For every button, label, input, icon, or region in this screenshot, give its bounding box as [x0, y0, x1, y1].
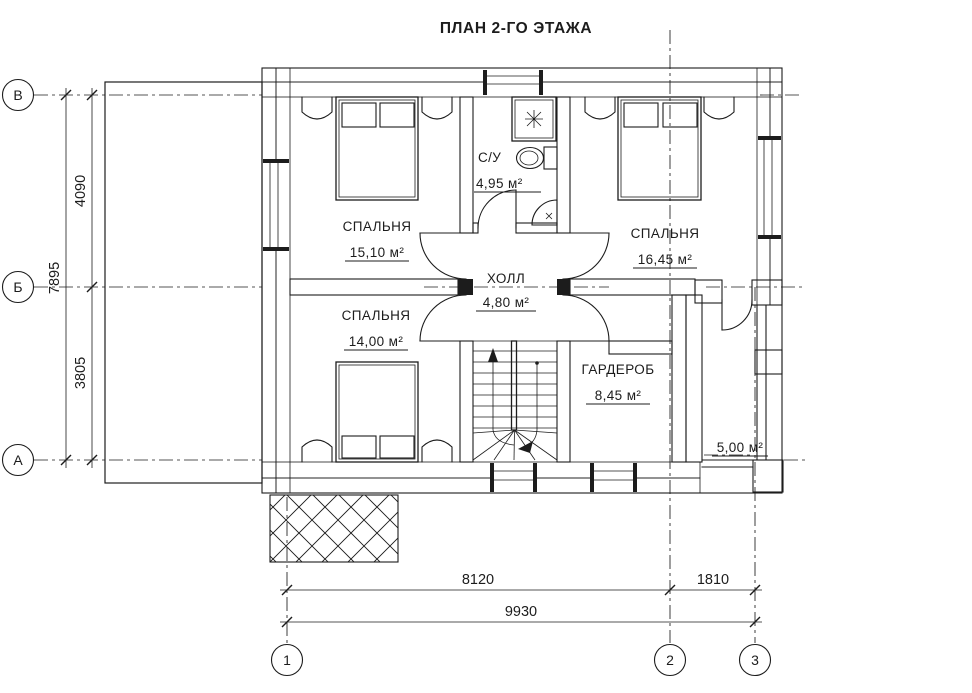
window-top: [483, 69, 543, 96]
axis-row-v-label: В: [13, 87, 22, 103]
dimension-left: 4090 3805 7895: [47, 88, 97, 468]
balcony: [702, 305, 783, 492]
grid-axis-bubbles: В Б А 1 2 3: [3, 80, 771, 676]
room-area-bathroom: 4,95 м²: [476, 176, 523, 191]
roof-hatch-porch: [270, 495, 398, 562]
axis-col-1: 1: [272, 645, 303, 676]
axis-col-3-label: 3: [751, 652, 759, 668]
axis-row-a-label: А: [13, 452, 23, 468]
sink-symbol: [532, 200, 557, 225]
bed-symbol-bedroom2: [585, 97, 734, 200]
room-area-bedroom1: 15,10 м²: [350, 245, 405, 260]
room-area-balcony: 5,00 м²: [717, 440, 764, 455]
staircase-symbol: [473, 341, 557, 460]
nightstand-symbol: [302, 440, 332, 462]
axis-col-3: 3: [740, 645, 771, 676]
window-left: [263, 159, 289, 251]
nightstand-symbol: [422, 440, 452, 462]
nightstand-symbol: [585, 97, 615, 119]
room-label-bedroom3: СПАЛЬНЯ: [342, 308, 411, 323]
room-label-bathroom: С/У: [478, 150, 501, 165]
nightstand-symbol: [302, 97, 332, 119]
window-right: [758, 136, 781, 239]
nightstand-symbol: [422, 97, 452, 119]
door-arc-balcony: [722, 300, 752, 330]
door-arc-bedroom2: [563, 233, 609, 279]
room-label-bedroom1: СПАЛЬНЯ: [343, 219, 412, 234]
toilet-symbol: [517, 147, 558, 169]
roof-hatch-left: [105, 82, 262, 483]
room-area-wardrobe: 8,45 м²: [595, 388, 642, 403]
dim-left-segment-top: 4090: [73, 175, 89, 207]
room-area-bedroom2: 16,45 м²: [638, 252, 693, 267]
room-label-wardrobe: ГАРДЕРОБ: [582, 362, 655, 377]
floor-plan-sheet: ПЛАН 2-ГО ЭТАЖА СПАЛЬНЯ 15,10 м² С/У 4,9…: [0, 0, 972, 693]
door-arc-bathroom: [478, 190, 516, 228]
axis-col-2: 2: [655, 645, 686, 676]
door-arc-bedroom3: [420, 295, 466, 341]
dim-bottom-total: 9930: [505, 604, 537, 620]
window-bottom-stairs: [490, 463, 537, 492]
dim-left-total: 7895: [47, 262, 63, 294]
nightstand-symbol: [704, 97, 734, 119]
axis-row-a: А: [3, 445, 34, 476]
grid-axis-lines: [34, 30, 805, 643]
stair-direction-arrows: [488, 348, 539, 453]
door-arc-bedroom1: [420, 233, 466, 279]
axis-col-2-label: 2: [666, 652, 674, 668]
room-label-hall: ХОЛЛ: [487, 271, 525, 286]
winder-treads: [473, 430, 557, 460]
shower-symbol: [512, 97, 556, 141]
door-arc-wardrobe: [563, 295, 609, 341]
axis-row-b-label: Б: [13, 279, 22, 295]
window-bottom-wardrobe: [590, 463, 637, 492]
bed-symbol-bedroom3: [302, 362, 452, 462]
interior-walls: [290, 97, 782, 462]
axis-row-v: В: [3, 80, 34, 111]
room-label-bedroom2: СПАЛЬНЯ: [631, 226, 700, 241]
room-area-hall: 4,80 м²: [483, 295, 530, 310]
dim-bottom-segment-left: 8120: [462, 572, 494, 588]
plan-title: ПЛАН 2-ГО ЭТАЖА: [440, 20, 592, 37]
labels: ПЛАН 2-ГО ЭТАЖА СПАЛЬНЯ 15,10 м² С/У 4,9…: [342, 20, 768, 456]
bed-symbol-bedroom1: [302, 97, 452, 200]
dimension-bottom: 8120 1810 9930: [280, 572, 762, 627]
dim-bottom-segment-right: 1810: [697, 572, 729, 588]
dim-left-segment-bottom: 3805: [73, 357, 89, 389]
axis-col-1-label: 1: [283, 652, 291, 668]
axis-row-b: Б: [3, 272, 34, 303]
room-area-bedroom3: 14,00 м²: [349, 334, 404, 349]
